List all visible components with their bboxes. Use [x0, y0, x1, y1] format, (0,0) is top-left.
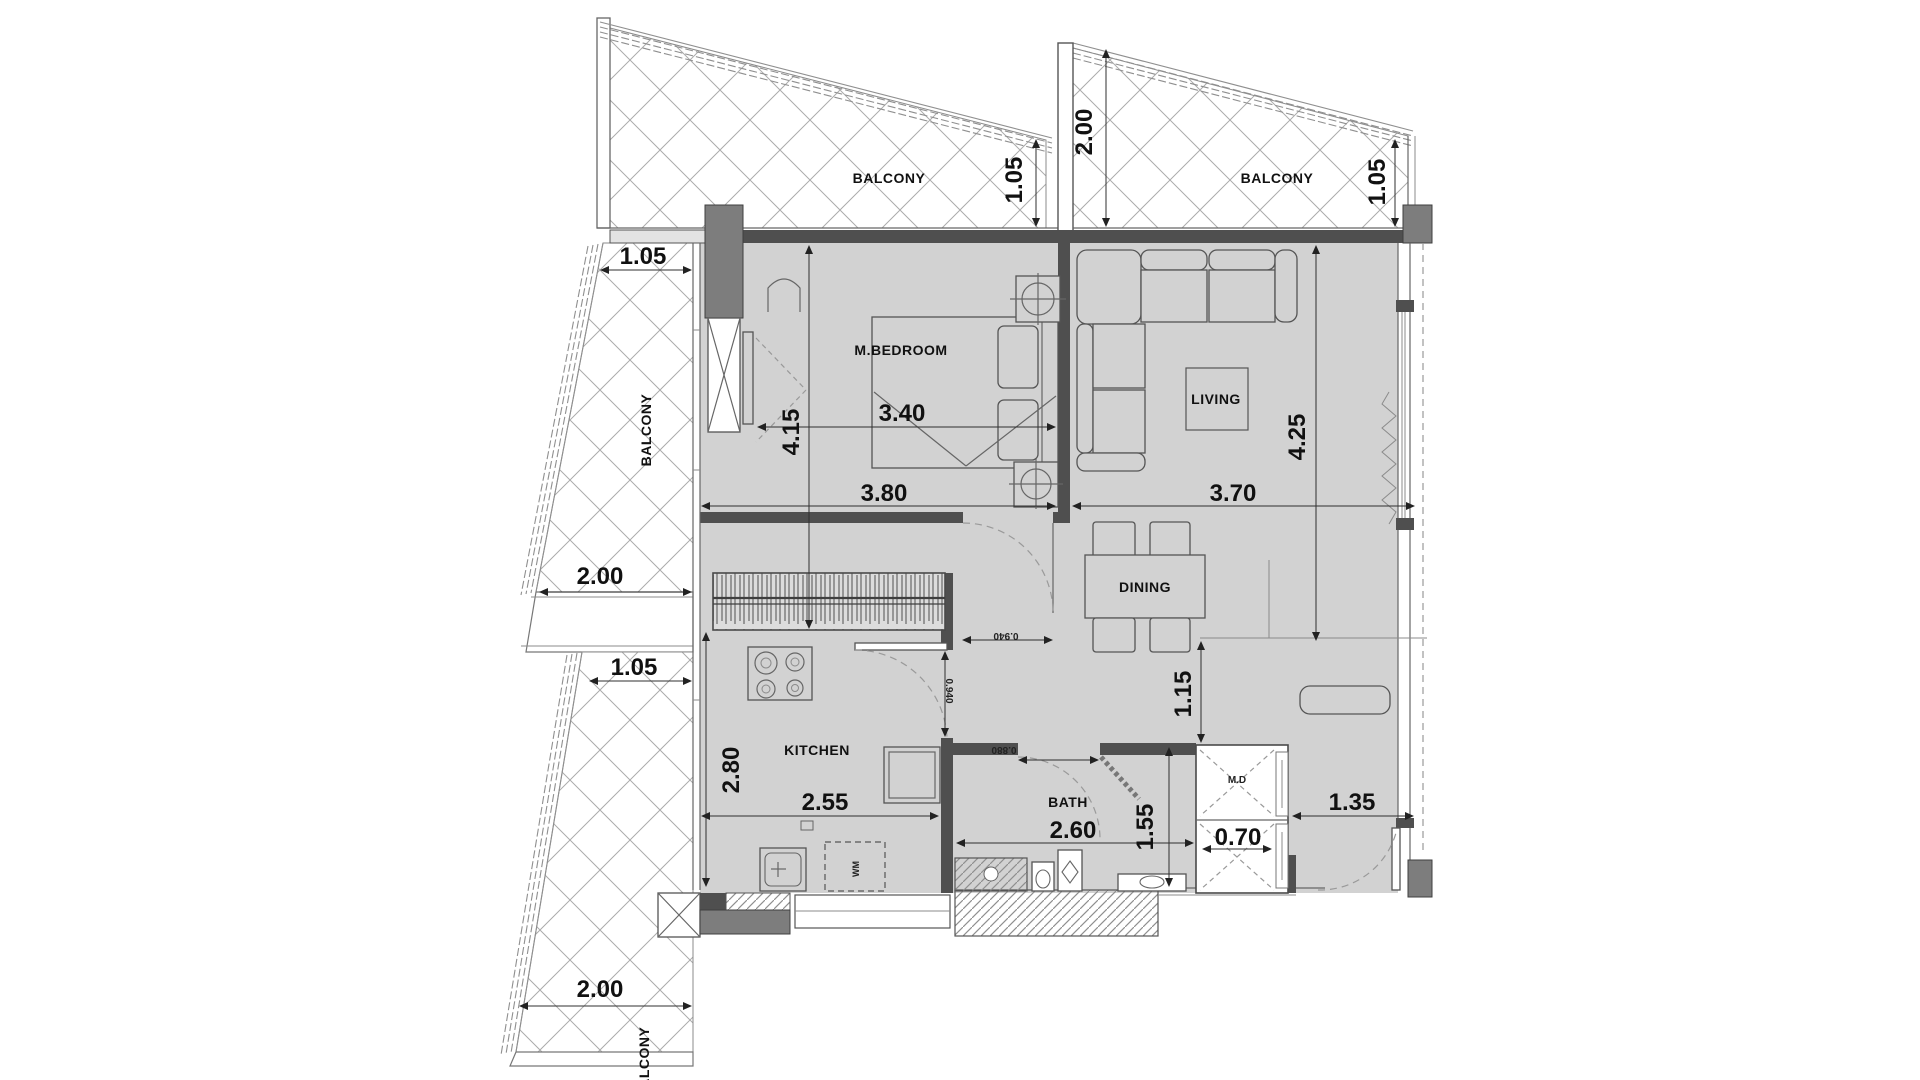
column-top-left: [705, 205, 743, 318]
dim-entry-width: 1.35: [1329, 789, 1376, 816]
fridge: [884, 747, 940, 803]
dim-span-right: 3.70: [1210, 480, 1257, 507]
balcony-left-lower-label: BALCONY: [636, 1026, 652, 1080]
balcony-top-right-label: BALCONY: [1241, 170, 1314, 186]
living-label: LIVING: [1191, 391, 1241, 407]
dining-chair: [1150, 618, 1190, 652]
bath-label: BATH: [1048, 794, 1088, 810]
floor-plan-canvas: BALCONY BALCONY BALCONY BALCONY: [0, 0, 1920, 1080]
washer-label: WM: [851, 861, 861, 877]
balcony-top-left-label: BALCONY: [853, 170, 926, 186]
floor-plan-drawing: BALCONY BALCONY BALCONY BALCONY: [0, 0, 1920, 1080]
dim-left-balcony-mid: 2.00: [577, 563, 624, 590]
dim-bedroom-height: 4.15: [778, 409, 805, 456]
dim-kitchen-height: 2.80: [718, 747, 745, 794]
bed: [872, 317, 1058, 468]
shower: [955, 858, 1027, 891]
balcony-left-slab: [521, 592, 693, 652]
stove: [748, 647, 812, 700]
dim-top-gap: 2.00: [1071, 109, 1098, 156]
dining-chair: [1093, 618, 1135, 652]
dim-tr-balcony: 1.05: [1364, 159, 1391, 206]
dim-hall-height: 1.15: [1170, 671, 1197, 718]
dim-bath-width: 2.60: [1050, 817, 1097, 844]
kitchen-label: KITCHEN: [784, 742, 850, 758]
toilet: [1032, 862, 1054, 891]
vanity-basin: [1118, 874, 1186, 891]
dim-span-left: 3.80: [861, 480, 908, 507]
dim-left-balcony-lower: 1.05: [611, 654, 658, 681]
column-top-right: [1403, 205, 1432, 243]
bath-exterior-wall: [955, 890, 1158, 936]
dim-bedroom-width: 3.40: [879, 400, 926, 427]
ceiling-fixture-icon: [1010, 273, 1066, 325]
dim-left-balcony-top: 1.05: [620, 243, 667, 270]
kitchen-sink: [760, 848, 806, 891]
dim-kitchen-width: 2.55: [802, 789, 849, 816]
dim-closet-width: 0.70: [1215, 824, 1262, 851]
dim-bath-height: 1.55: [1132, 804, 1159, 851]
wc-bidet: [1058, 850, 1082, 891]
entry-bench: [1300, 686, 1390, 714]
maid-closet: [1196, 745, 1288, 893]
dim-left-balcony-bottom: 2.00: [577, 976, 624, 1003]
dim-tl-balcony: 1.05: [1001, 157, 1028, 204]
maid-closet-label: M.D: [1228, 775, 1246, 786]
dining-chair: [1150, 522, 1190, 558]
bedroom-label: M.BEDROOM: [854, 342, 947, 358]
dim-door-bath: 0.880: [991, 744, 1016, 755]
column-bottom-right: [1408, 860, 1432, 897]
kitchen-counter: [713, 573, 945, 630]
dining-label: DINING: [1119, 579, 1171, 595]
dim-door-kitchen: 0.940: [943, 678, 954, 703]
ceiling-fixture-icon: [1009, 459, 1063, 509]
dim-living-height: 4.25: [1284, 414, 1311, 461]
balcony-left-upper-label: BALCONY: [638, 393, 654, 466]
dim-door-bedroom: 0.940: [993, 630, 1018, 641]
vanity-desk: [743, 332, 753, 424]
dining-chair: [1093, 522, 1135, 558]
